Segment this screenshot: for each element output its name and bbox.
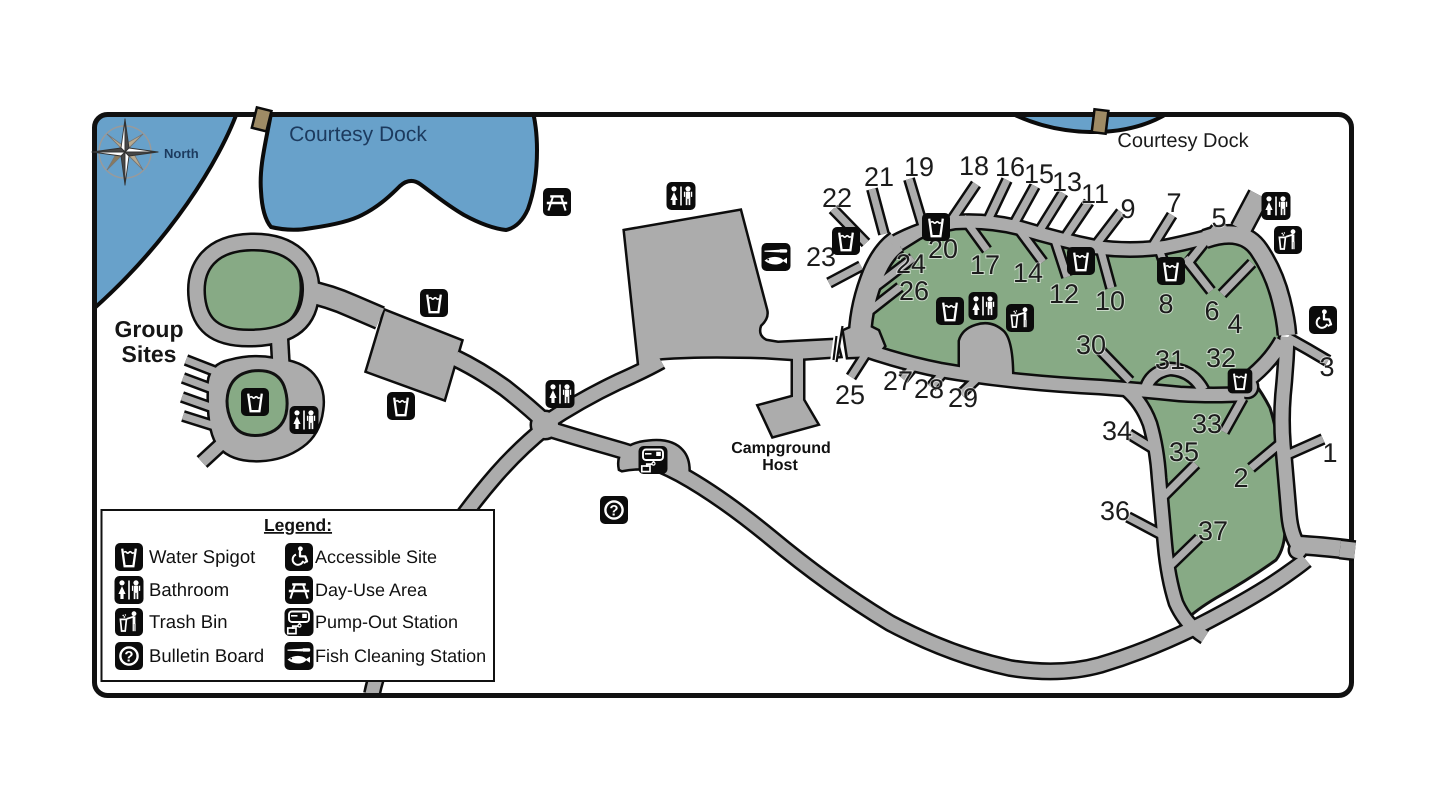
svg-text:22: 22 (822, 183, 852, 213)
svg-text:8: 8 (1158, 289, 1173, 319)
svg-text:13: 13 (1052, 167, 1082, 197)
svg-text:32: 32 (1206, 343, 1236, 373)
svg-text:6: 6 (1204, 296, 1219, 326)
svg-text:Courtesy Dock: Courtesy Dock (1117, 130, 1249, 152)
svg-text:14: 14 (1013, 258, 1043, 288)
svg-text:Trash Bin: Trash Bin (149, 611, 227, 632)
svg-text:Courtesy Dock: Courtesy Dock (289, 123, 427, 146)
svg-text:Accessible Site: Accessible Site (315, 547, 437, 567)
svg-text:2: 2 (1233, 463, 1248, 493)
svg-text:27: 27 (883, 366, 913, 396)
svg-text:19: 19 (904, 152, 934, 182)
svg-text:29: 29 (948, 383, 978, 413)
svg-text:35: 35 (1169, 437, 1199, 467)
svg-text:Group: Group (115, 316, 184, 342)
svg-text:Day-Use Area: Day-Use Area (315, 580, 428, 600)
svg-text:33: 33 (1192, 409, 1222, 439)
svg-text:15: 15 (1024, 159, 1054, 189)
svg-text:4: 4 (1227, 309, 1242, 339)
svg-text:Water Spigot: Water Spigot (149, 546, 255, 567)
svg-text:Sites: Sites (122, 341, 177, 367)
svg-text:Pump-Out Station: Pump-Out Station (315, 612, 458, 632)
svg-text:36: 36 (1100, 496, 1130, 526)
svg-text:Fish Cleaning Station: Fish Cleaning Station (315, 646, 486, 666)
svg-text:9: 9 (1120, 194, 1135, 224)
svg-text:37: 37 (1198, 516, 1228, 546)
svg-text:26: 26 (899, 276, 929, 306)
svg-text:16: 16 (995, 152, 1025, 182)
svg-text:25: 25 (835, 380, 865, 410)
svg-text:34: 34 (1102, 416, 1132, 446)
svg-text:Host: Host (762, 457, 798, 474)
svg-text:North: North (164, 146, 199, 161)
svg-text:Bulletin Board: Bulletin Board (149, 645, 264, 666)
svg-text:Legend:: Legend: (264, 515, 332, 535)
svg-text:12: 12 (1049, 279, 1079, 309)
svg-text:1: 1 (1322, 438, 1337, 468)
svg-text:21: 21 (864, 162, 894, 192)
svg-text:7: 7 (1166, 188, 1181, 218)
svg-text:3: 3 (1319, 352, 1334, 382)
svg-text:11: 11 (1081, 179, 1109, 209)
svg-text:Bathroom: Bathroom (149, 579, 229, 600)
svg-text:31: 31 (1155, 345, 1185, 375)
svg-text:30: 30 (1076, 330, 1106, 360)
svg-text:24: 24 (896, 249, 926, 279)
svg-text:10: 10 (1095, 286, 1125, 316)
svg-text:5: 5 (1211, 203, 1226, 233)
svg-text:17: 17 (970, 250, 1000, 280)
svg-text:28: 28 (914, 374, 944, 404)
svg-text:23: 23 (806, 242, 836, 272)
svg-text:18: 18 (959, 151, 989, 181)
svg-text:Campground: Campground (731, 440, 831, 457)
